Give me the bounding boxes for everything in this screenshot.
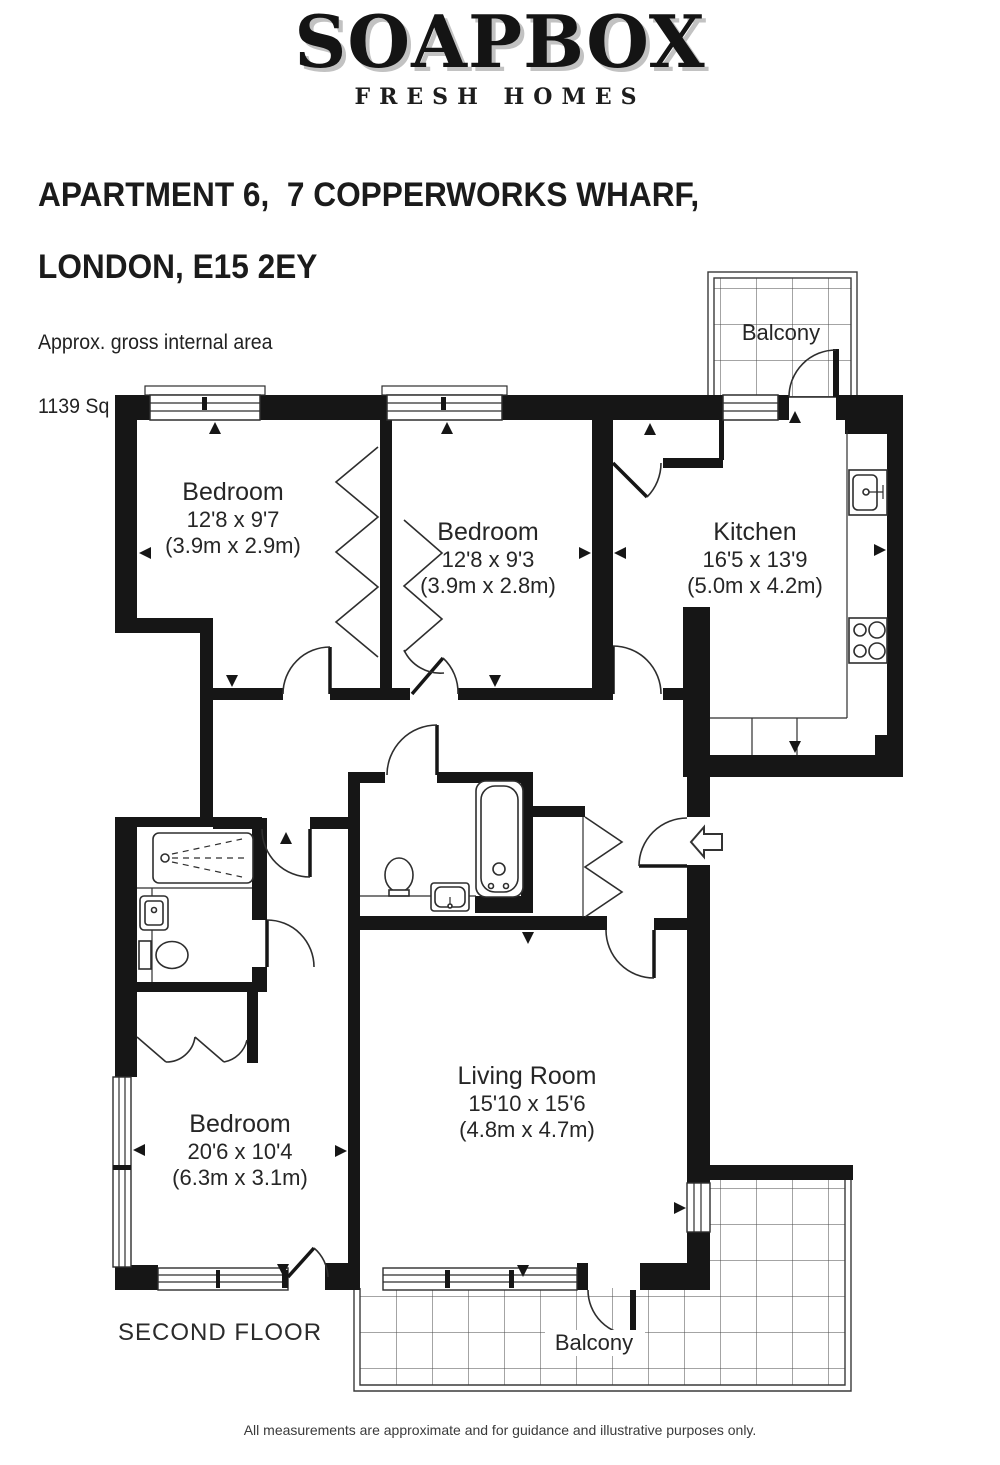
entry-arrow-icon xyxy=(691,827,722,857)
svg-text:12'8 x 9'7: 12'8 x 9'7 xyxy=(187,507,280,532)
door-kitchen-hall xyxy=(613,646,661,694)
svg-text:Living Room: Living Room xyxy=(458,1062,597,1090)
svg-text:Bedroom: Bedroom xyxy=(189,1110,290,1138)
bathroom-vanity xyxy=(360,883,476,911)
window-bedroom2 xyxy=(387,395,502,420)
floor-plan-drawing: Bedroom 12'8 x 9'7 (3.9m x 2.9m) Bedroom… xyxy=(0,0,1000,1465)
room-label-bedroom2: Bedroom 12'8 x 9'3 (3.9m x 2.8m) xyxy=(420,518,556,598)
window-living-bottom xyxy=(383,1268,577,1290)
balcony-bottom-label: Balcony xyxy=(555,1330,633,1355)
room-label-bedroom1: Bedroom 12'8 x 9'7 (3.9m x 2.9m) xyxy=(165,478,301,558)
window-bedroom1 xyxy=(150,395,260,420)
svg-text:(4.8m x 4.7m): (4.8m x 4.7m) xyxy=(459,1117,595,1142)
window-living-right xyxy=(687,1183,710,1232)
door-living-room xyxy=(606,930,654,978)
shower-symbol xyxy=(153,833,253,883)
svg-text:15'10 x 15'6: 15'10 x 15'6 xyxy=(468,1091,585,1116)
floor-level-label: SECOND FLOOR xyxy=(118,1319,322,1346)
svg-text:(5.0m x 4.2m): (5.0m x 4.2m) xyxy=(687,573,823,598)
bathtub-symbol xyxy=(476,781,523,897)
toilet-bathroom xyxy=(385,858,413,896)
door-bedroom1 xyxy=(283,647,330,694)
door-shower-room xyxy=(267,920,314,967)
svg-text:Kitchen: Kitchen xyxy=(713,518,796,546)
hob-symbol xyxy=(849,618,887,663)
svg-text:Bedroom: Bedroom xyxy=(182,478,283,506)
disclaimer-text: All measurements are approximate and for… xyxy=(0,1422,1000,1438)
svg-text:12'8 x 9'3: 12'8 x 9'3 xyxy=(442,547,535,572)
window-bedroom3-bottom xyxy=(158,1268,288,1290)
door-bedroom2 xyxy=(412,658,458,694)
door-bathroom xyxy=(387,725,437,775)
svg-text:(3.9m x 2.8m): (3.9m x 2.8m) xyxy=(420,573,556,598)
room-label-living-room: Living Room 15'10 x 15'6 (4.8m x 4.7m) xyxy=(458,1062,597,1142)
svg-text:Bedroom: Bedroom xyxy=(437,518,538,546)
window-kitchen-balcony-sill xyxy=(723,395,778,420)
svg-text:16'5 x 13'9: 16'5 x 13'9 xyxy=(702,547,807,572)
svg-text:(3.9m x 2.9m): (3.9m x 2.9m) xyxy=(165,533,301,558)
balcony-top-label: Balcony xyxy=(742,320,820,345)
closet-hall xyxy=(583,817,622,917)
door-kitchen-top xyxy=(613,463,661,497)
window-bedroom3-left xyxy=(113,1077,131,1267)
room-label-bedroom3: Bedroom 20'6 x 10'4 (6.3m x 3.1m) xyxy=(172,1110,308,1190)
room-label-kitchen: Kitchen 16'5 x 13'9 (5.0m x 4.2m) xyxy=(687,518,823,598)
floorplan-page: SOAPBOX FRESH HOMES APARTMENT 6, 7 COPPE… xyxy=(0,0,1000,1465)
svg-text:(6.3m x 3.1m): (6.3m x 3.1m) xyxy=(172,1165,308,1190)
closet-bedroom3 xyxy=(137,1037,247,1062)
door-bedroom3-balcony xyxy=(288,1248,328,1277)
door-entrance xyxy=(639,818,687,866)
kitchen-sink-symbol xyxy=(849,470,887,515)
wardrobe-bedroom1 xyxy=(336,447,378,657)
svg-text:20'6 x 10'4: 20'6 x 10'4 xyxy=(187,1139,292,1164)
toilet-shower-room xyxy=(139,941,188,969)
shower-room-vanity xyxy=(137,888,252,982)
